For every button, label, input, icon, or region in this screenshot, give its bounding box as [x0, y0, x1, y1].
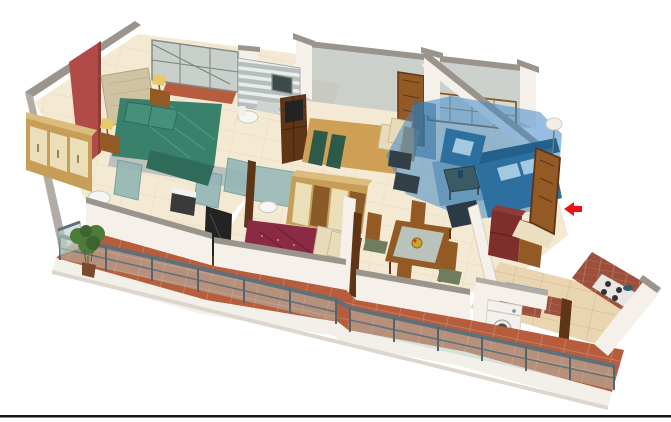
washer-knob	[512, 309, 516, 313]
foliage-5	[86, 236, 100, 250]
highlight-wall-wash	[414, 100, 436, 160]
fruit-bowl	[412, 238, 422, 248]
entrance-door	[530, 148, 560, 234]
pillow-2	[148, 106, 178, 130]
lamp-shade	[546, 118, 562, 130]
foliage-4	[80, 225, 92, 237]
shower-glass-1	[114, 160, 142, 200]
pan	[623, 285, 633, 291]
burner-1	[605, 281, 611, 287]
burner-3	[601, 289, 607, 295]
lamp-stem	[159, 85, 160, 92]
toilet-tank	[238, 106, 246, 116]
bottom-rule	[0, 415, 671, 418]
shower-glass-3	[224, 158, 250, 196]
table-vase	[458, 170, 463, 178]
lamp-stem	[107, 129, 108, 136]
wardrobe-door-3	[70, 137, 88, 178]
lamp-shade	[152, 74, 166, 86]
fruit	[414, 240, 417, 243]
lamp-shade	[100, 118, 114, 130]
burner-4	[612, 295, 618, 301]
fixture-white	[259, 202, 277, 213]
tv-wall	[285, 99, 303, 123]
floorplan-svg	[0, 0, 671, 422]
table-top	[444, 166, 480, 192]
small-window	[272, 74, 292, 94]
floorplan-render	[0, 0, 671, 422]
burner-2	[616, 287, 622, 293]
